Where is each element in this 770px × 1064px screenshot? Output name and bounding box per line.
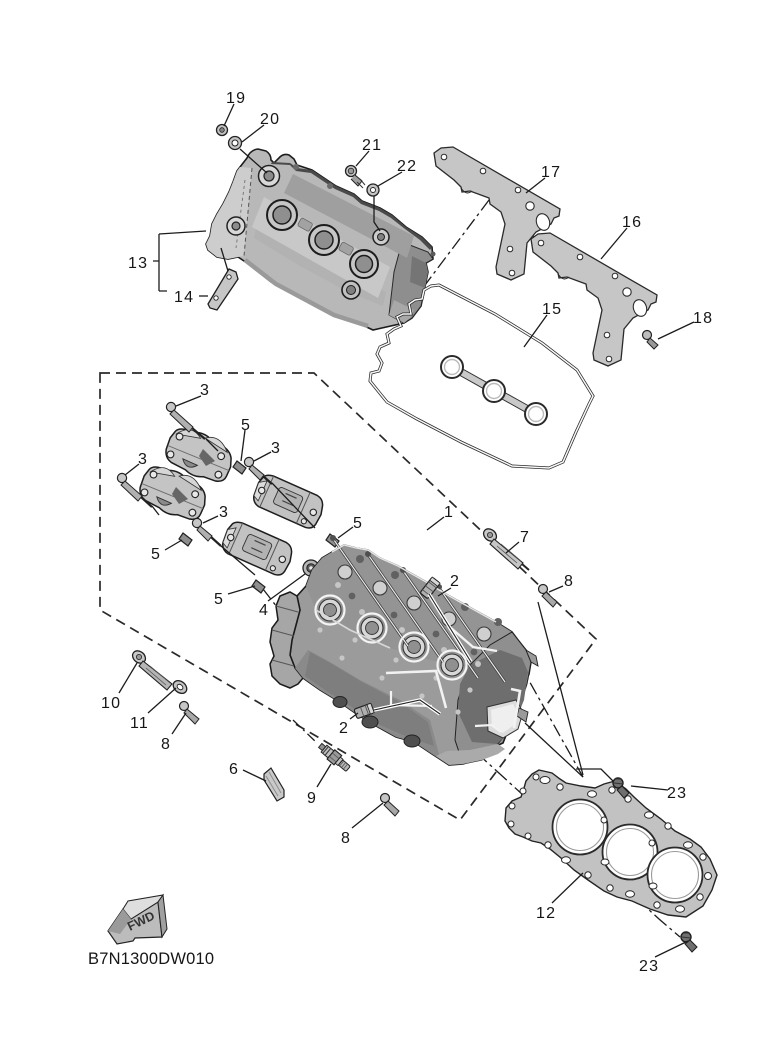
svg-text:11: 11 bbox=[130, 715, 149, 732]
svg-text:9: 9 bbox=[307, 790, 317, 807]
svg-text:B7N1300DW010: B7N1300DW010 bbox=[88, 950, 214, 968]
svg-text:5: 5 bbox=[353, 515, 363, 532]
svg-text:5: 5 bbox=[241, 417, 251, 434]
svg-text:8: 8 bbox=[161, 736, 171, 753]
svg-text:14: 14 bbox=[174, 289, 194, 306]
svg-text:23: 23 bbox=[639, 958, 659, 975]
svg-text:17: 17 bbox=[541, 164, 561, 181]
svg-text:1: 1 bbox=[444, 504, 454, 521]
svg-text:15: 15 bbox=[542, 301, 562, 318]
svg-text:19: 19 bbox=[226, 90, 246, 107]
svg-text:20: 20 bbox=[260, 111, 280, 128]
svg-text:16: 16 bbox=[622, 214, 642, 231]
svg-text:23: 23 bbox=[667, 785, 687, 802]
svg-text:3: 3 bbox=[138, 451, 148, 468]
svg-text:3: 3 bbox=[219, 504, 229, 521]
svg-text:4: 4 bbox=[259, 602, 269, 619]
svg-text:18: 18 bbox=[693, 310, 713, 327]
svg-text:2: 2 bbox=[450, 573, 460, 590]
svg-text:12: 12 bbox=[536, 905, 556, 922]
svg-text:5: 5 bbox=[214, 591, 224, 608]
svg-text:7: 7 bbox=[520, 529, 530, 546]
svg-text:3: 3 bbox=[271, 440, 281, 457]
svg-text:3: 3 bbox=[200, 382, 210, 399]
svg-text:8: 8 bbox=[341, 830, 351, 847]
svg-text:2: 2 bbox=[339, 720, 349, 737]
svg-text:6: 6 bbox=[229, 761, 239, 778]
svg-text:5: 5 bbox=[151, 546, 161, 563]
svg-text:10: 10 bbox=[101, 695, 121, 712]
svg-text:8: 8 bbox=[564, 573, 574, 590]
svg-text:22: 22 bbox=[397, 158, 417, 175]
svg-text:21: 21 bbox=[362, 137, 382, 154]
svg-text:13: 13 bbox=[128, 255, 148, 272]
